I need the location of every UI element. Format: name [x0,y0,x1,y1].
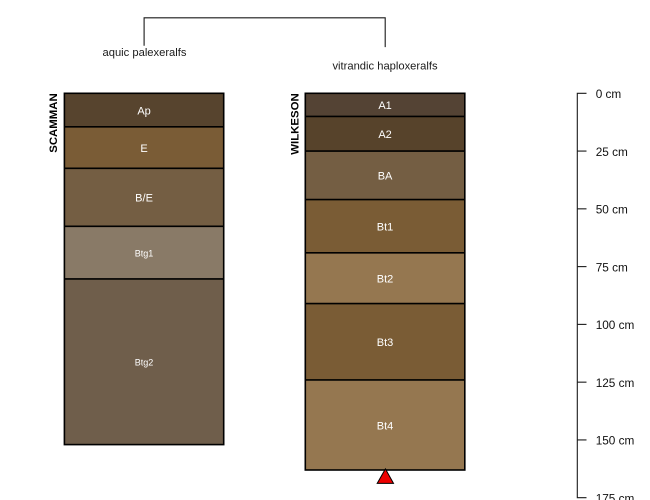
svg-text:Bt4: Bt4 [377,420,394,432]
svg-text:BA: BA [378,171,393,183]
svg-text:aquic palexeralfs: aquic palexeralfs [103,47,187,59]
svg-text:Ap: Ap [137,105,150,117]
svg-text:100 cm: 100 cm [596,318,635,332]
svg-text:Btg2: Btg2 [135,358,154,368]
svg-text:Bt3: Bt3 [377,337,394,349]
svg-text:Bt2: Bt2 [377,274,394,286]
svg-text:A1: A1 [378,100,391,112]
svg-text:0 cm: 0 cm [596,87,622,101]
svg-text:175 cm: 175 cm [596,491,635,500]
svg-text:25 cm: 25 cm [596,145,628,159]
svg-text:SCAMMAN: SCAMMAN [48,93,60,152]
svg-text:vitrandic haploxeralfs: vitrandic haploxeralfs [332,61,437,73]
svg-text:A2: A2 [378,129,391,141]
svg-text:150 cm: 150 cm [596,434,635,448]
svg-text:125 cm: 125 cm [596,376,635,390]
svg-text:WILKESON: WILKESON [290,93,302,154]
svg-text:B/E: B/E [135,193,153,205]
svg-text:75 cm: 75 cm [596,260,628,274]
svg-text:Bt1: Bt1 [377,222,394,234]
svg-text:E: E [140,143,147,155]
svg-text:50 cm: 50 cm [596,203,628,217]
svg-text:Btg1: Btg1 [135,248,154,258]
